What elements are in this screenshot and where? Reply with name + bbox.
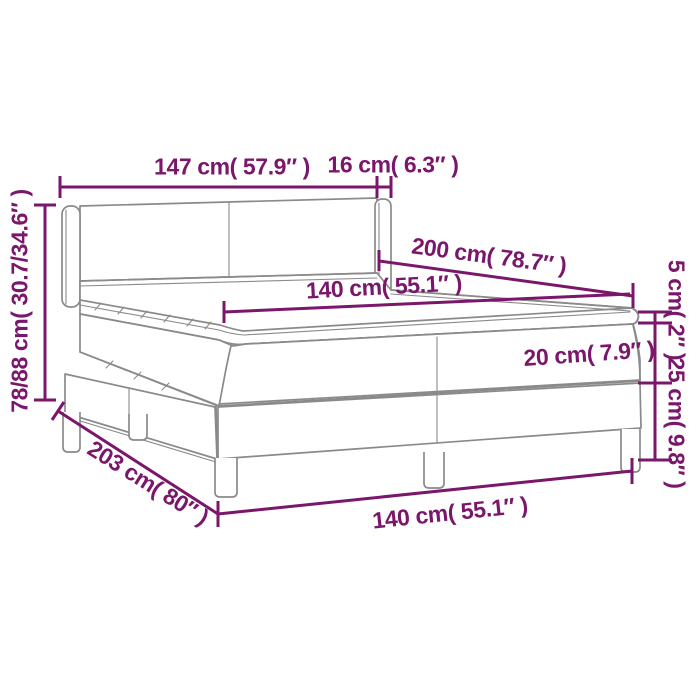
label-base-height: 25 cm( 9.8″ ) <box>663 357 690 488</box>
label-headboard-height: 78/88 cm( 30.7/34.6″ ) <box>7 189 34 412</box>
leg <box>129 414 147 440</box>
headboard-left-wing <box>62 206 80 307</box>
label-topper-height: 5 cm( 2″ ) <box>663 260 690 360</box>
leg <box>215 458 237 497</box>
bed-dimension-diagram: 147 cm( 57.9″ ) 16 cm( 6.3″ ) 78/88 cm( … <box>0 0 700 700</box>
label-headboard-width: 147 cm( 57.9″ ) <box>154 154 310 181</box>
label-wing-depth: 16 cm( 6.3″ ) <box>327 152 458 179</box>
leg <box>424 452 444 488</box>
